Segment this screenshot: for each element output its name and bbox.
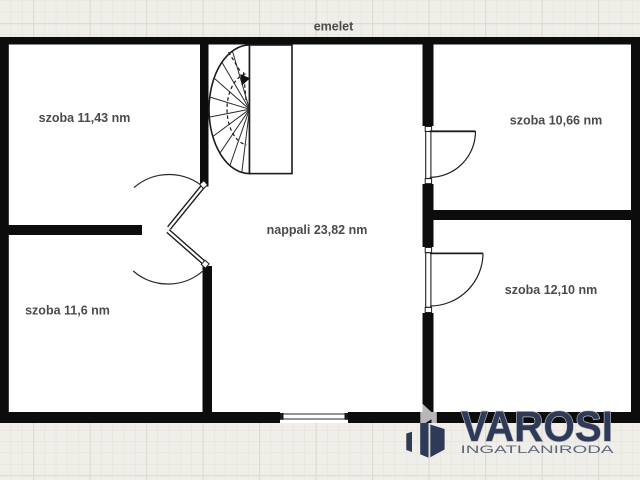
svg-text:nappali 23,82 nm: nappali 23,82 nm (267, 223, 368, 237)
svg-text:szoba 11,43 nm: szoba 11,43 nm (39, 111, 131, 125)
svg-text:szoba 12,10 nm: szoba 12,10 nm (505, 283, 597, 297)
svg-text:szoba 11,6 nm: szoba 11,6 nm (25, 304, 110, 318)
svg-text:INGATLANIRODA: INGATLANIRODA (461, 444, 615, 456)
svg-text:emelet: emelet (314, 20, 354, 34)
svg-text:szoba 10,66 nm: szoba 10,66 nm (510, 114, 602, 128)
